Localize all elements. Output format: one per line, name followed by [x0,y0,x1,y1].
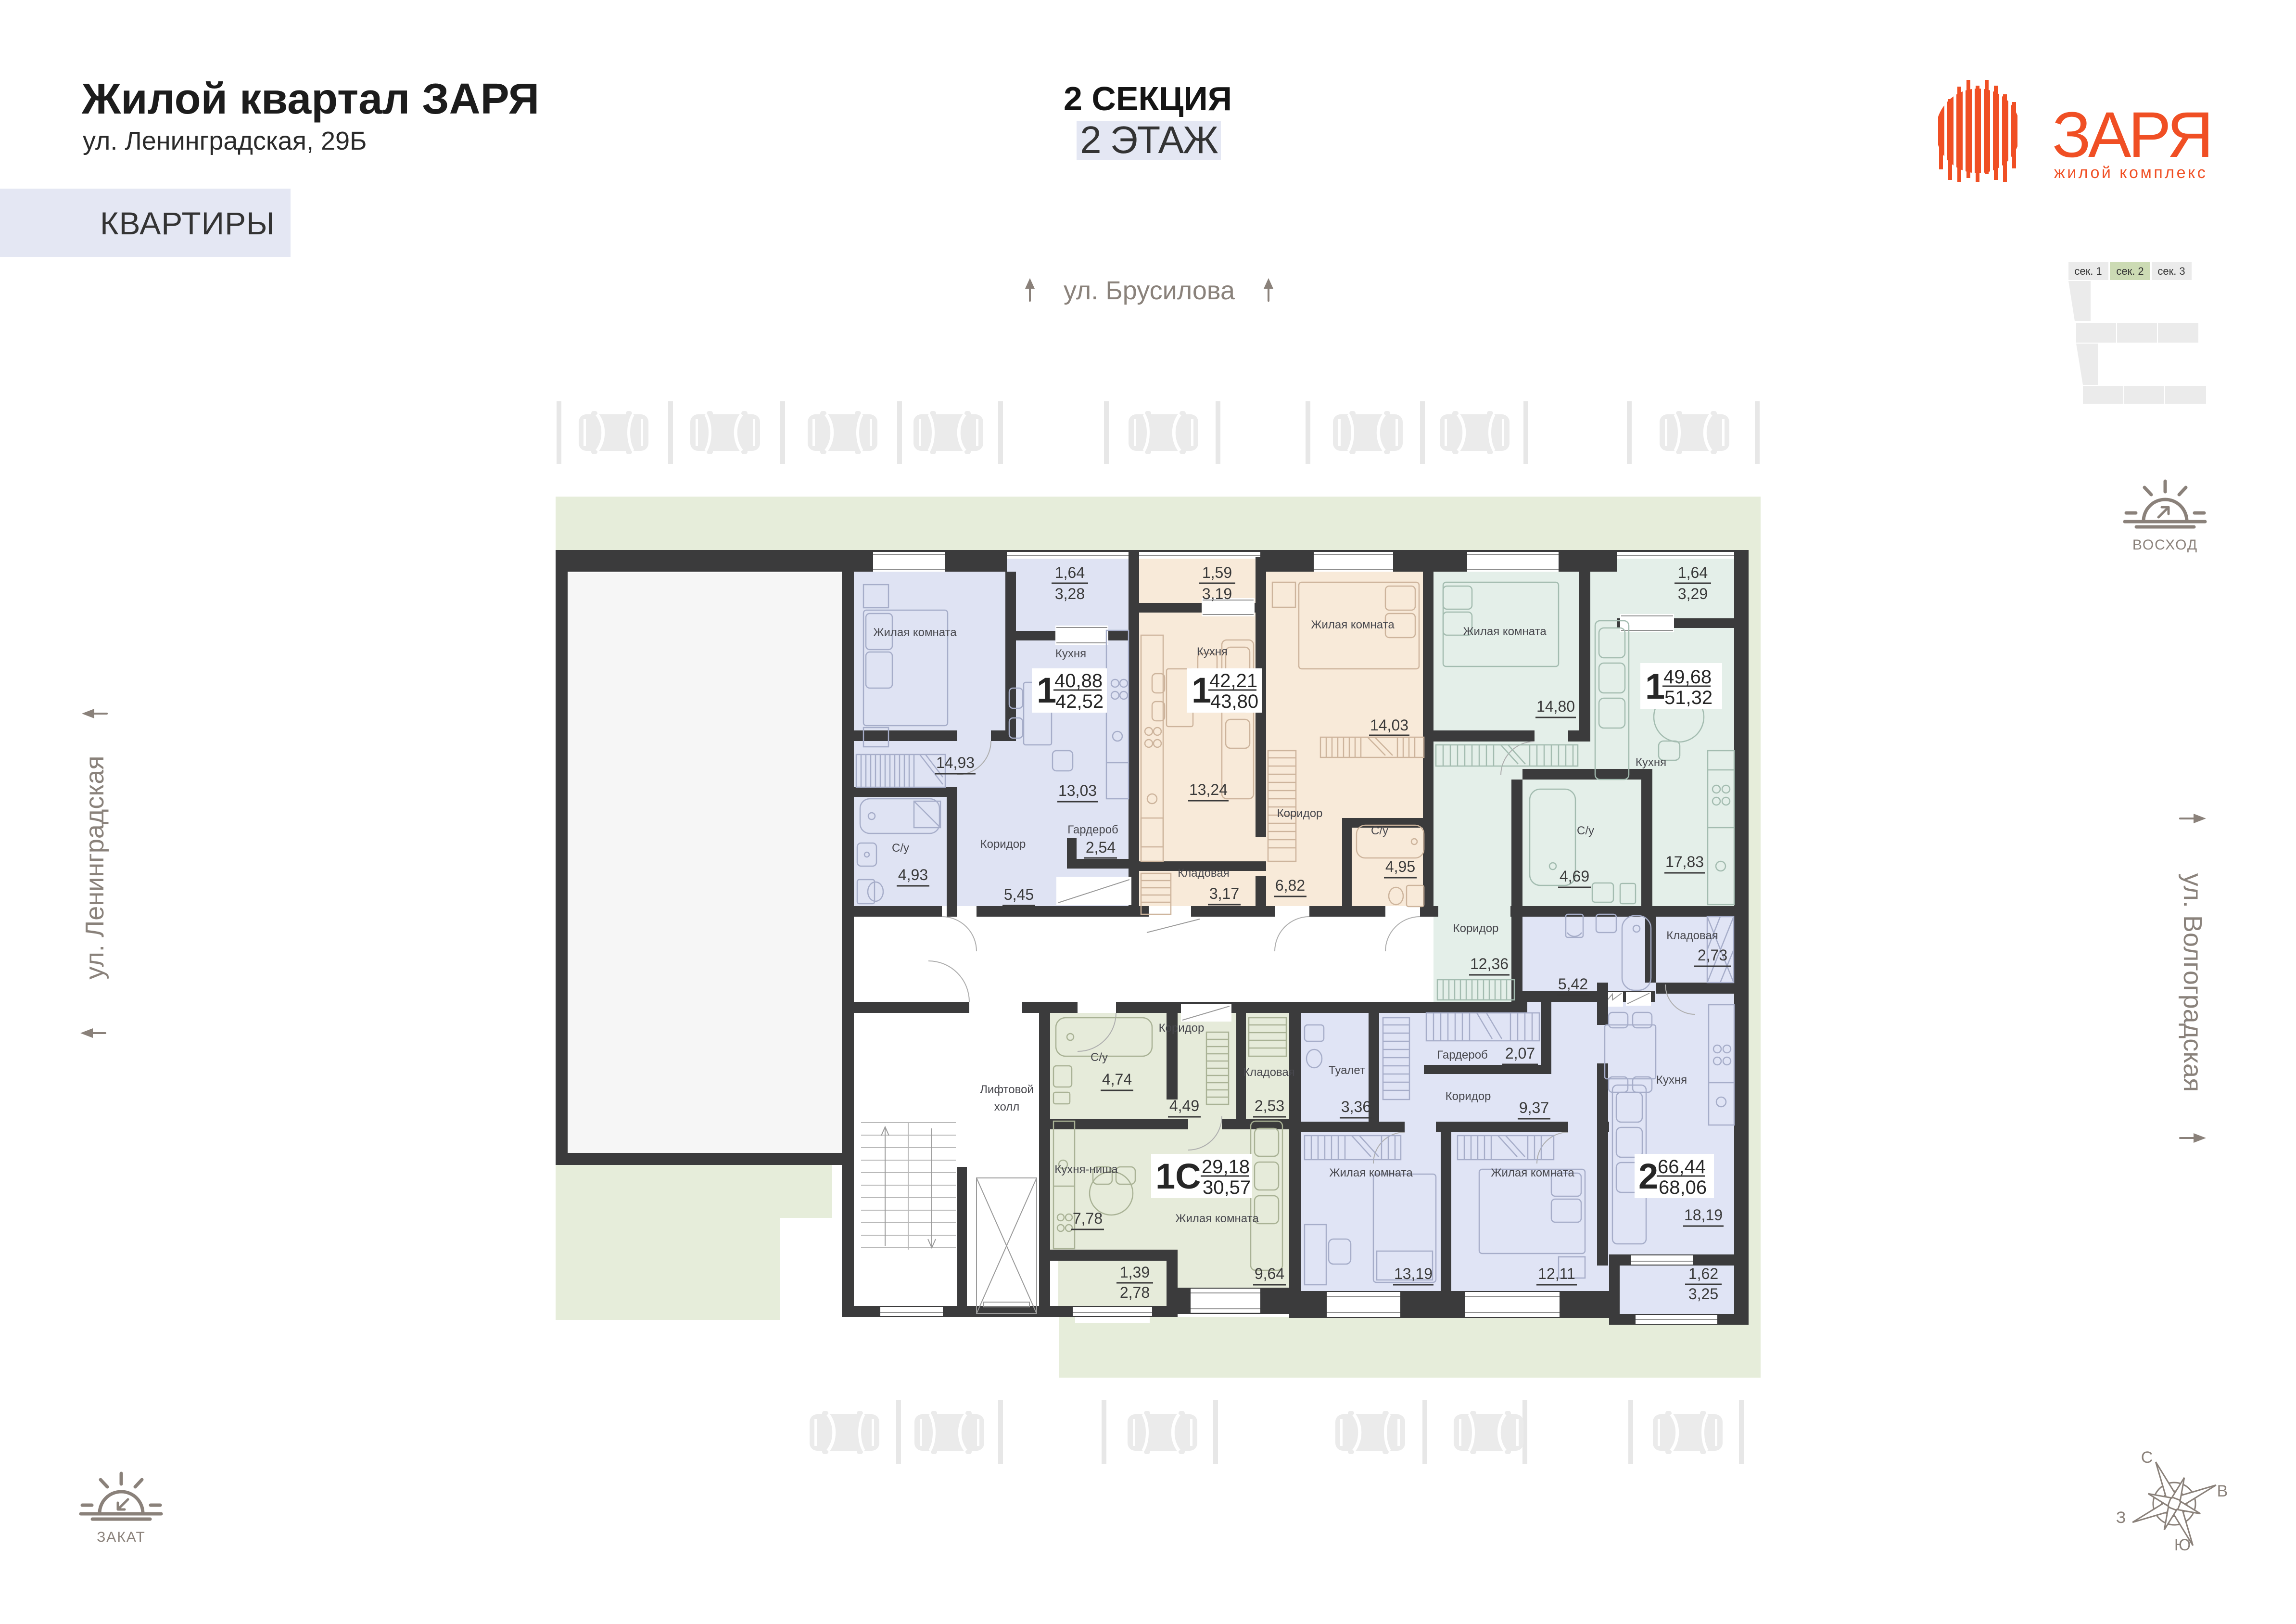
svg-text:7,78: 7,78 [1073,1210,1103,1227]
svg-text:ул. Брусилова: ул. Брусилова [1064,276,1235,305]
svg-text:12,36: 12,36 [1470,955,1509,972]
svg-text:5,45: 5,45 [1004,886,1034,903]
svg-text:3,17: 3,17 [1209,885,1239,902]
svg-text:С: С [2141,1448,2153,1467]
svg-text:ул. Волгоградская: ул. Волгоградская [2178,873,2207,1092]
svg-text:Гардероб: Гардероб [1437,1049,1488,1061]
svg-text:4,49: 4,49 [1169,1097,1199,1114]
svg-text:КВАРТИРЫ: КВАРТИРЫ [100,205,275,241]
svg-text:С/у: С/у [892,842,909,855]
svg-text:3,28: 3,28 [1055,585,1085,602]
svg-text:4,93: 4,93 [898,866,928,883]
svg-text:жилой комплекс: жилой комплекс [2054,164,2207,182]
svg-text:З: З [2116,1509,2126,1527]
svg-text:Кухня: Кухня [1055,647,1086,660]
svg-text:ЗАРЯ: ЗАРЯ [2052,99,2211,171]
svg-text:14,93: 14,93 [936,754,975,771]
svg-text:Кухня: Кухня [1636,756,1666,769]
svg-text:сек. 2: сек. 2 [2116,265,2144,277]
svg-text:Коридор: Коридор [1277,807,1323,820]
svg-text:18,19: 18,19 [1684,1206,1723,1224]
svg-text:Жилая комната: Жилая комната [1311,618,1395,631]
svg-text:42,52: 42,52 [1055,691,1104,712]
svg-text:42,21: 42,21 [1209,670,1257,691]
svg-text:С/у: С/у [1091,1051,1108,1064]
svg-text:ЗАКАТ: ЗАКАТ [97,1529,146,1545]
svg-text:66,44: 66,44 [1658,1156,1706,1177]
svg-text:Гардероб: Гардероб [1067,823,1118,836]
svg-text:6,82: 6,82 [1275,877,1305,894]
svg-text:1,39: 1,39 [1120,1264,1150,1281]
svg-text:1,64: 1,64 [1678,564,1708,581]
svg-text:1,59: 1,59 [1202,564,1232,581]
svg-text:2,78: 2,78 [1120,1284,1150,1301]
svg-text:Жилая комната: Жилая комната [1175,1212,1259,1225]
svg-text:Коридор: Коридор [980,838,1026,851]
svg-text:1: 1 [1037,670,1056,710]
svg-text:Жилая комната: Жилая комната [1491,1166,1574,1179]
svg-text:Туалет: Туалет [1329,1064,1365,1077]
svg-text:ул. Ленинградская, 29Б: ул. Ленинградская, 29Б [83,127,367,155]
svg-text:29,18: 29,18 [1202,1156,1250,1177]
svg-text:9,64: 9,64 [1255,1265,1284,1282]
svg-text:17,83: 17,83 [1665,853,1704,870]
svg-text:С/у: С/у [1371,824,1388,837]
svg-text:ул. Ленинградская: ул. Ленинградская [80,756,109,980]
svg-text:5,42: 5,42 [1558,975,1588,993]
svg-text:Ю: Ю [2174,1536,2191,1554]
svg-text:1,62: 1,62 [1688,1265,1718,1282]
svg-text:В: В [2217,1482,2228,1500]
svg-text:3,29: 3,29 [1678,585,1708,602]
svg-text:13,19: 13,19 [1394,1265,1433,1282]
svg-text:2,53: 2,53 [1255,1097,1284,1114]
svg-text:Кладовая: Кладовая [1243,1066,1295,1079]
svg-text:Кладовая: Кладовая [1666,929,1718,942]
svg-text:Кухня-ниша: Кухня-ниша [1054,1163,1118,1176]
svg-text:9,37: 9,37 [1519,1099,1549,1116]
svg-text:4,69: 4,69 [1560,868,1589,885]
svg-text:сек. 1: сек. 1 [2074,265,2102,277]
svg-text:30,57: 30,57 [1203,1177,1251,1198]
svg-text:2: 2 [1638,1156,1658,1196]
svg-text:49,68: 49,68 [1663,666,1712,688]
svg-text:Жилой квартал ЗАРЯ: Жилой квартал ЗАРЯ [81,75,539,123]
svg-text:Жилая комната: Жилая комната [873,626,957,639]
svg-text:2 СЕКЦИЯ: 2 СЕКЦИЯ [1064,80,1232,117]
svg-text:14,03: 14,03 [1370,716,1408,734]
svg-text:13,24: 13,24 [1189,781,1228,798]
svg-text:4,74: 4,74 [1102,1071,1132,1088]
svg-text:14,80: 14,80 [1536,698,1575,715]
svg-text:3,25: 3,25 [1688,1285,1718,1303]
svg-text:Лифтовой: Лифтовой [980,1083,1034,1096]
svg-text:3,19: 3,19 [1202,585,1232,602]
svg-text:43,80: 43,80 [1210,691,1258,712]
svg-text:Коридор: Коридор [1159,1022,1205,1035]
svg-text:Коридор: Коридор [1453,922,1499,935]
svg-text:2 ЭТАЖ: 2 ЭТАЖ [1080,118,1218,161]
svg-text:68,06: 68,06 [1659,1177,1707,1198]
svg-text:Жилая комната: Жилая комната [1329,1166,1413,1179]
svg-text:2,07: 2,07 [1505,1045,1535,1062]
svg-text:1: 1 [1645,666,1665,706]
svg-text:Жилая комната: Жилая комната [1463,625,1547,638]
svg-text:40,88: 40,88 [1054,670,1103,691]
svg-text:Кухня: Кухня [1656,1074,1687,1087]
svg-text:1: 1 [1192,670,1211,710]
svg-text:1,64: 1,64 [1055,564,1085,581]
svg-text:2,73: 2,73 [1698,946,1727,964]
svg-text:Кладовая: Кладовая [1178,867,1230,880]
svg-text:12,11: 12,11 [1538,1265,1575,1282]
svg-text:3,36: 3,36 [1341,1098,1371,1115]
svg-text:холл: холл [994,1100,1020,1113]
svg-text:Кухня: Кухня [1197,645,1228,658]
svg-text:С/у: С/у [1577,824,1594,837]
svg-text:4,95: 4,95 [1385,858,1415,875]
svg-text:ВОСХОД: ВОСХОД [2132,537,2198,553]
svg-text:51,32: 51,32 [1664,687,1712,708]
svg-text:2,54: 2,54 [1086,839,1116,856]
svg-text:13,03: 13,03 [1058,782,1097,799]
svg-text:Коридор: Коридор [1446,1090,1491,1103]
svg-text:сек. 3: сек. 3 [2157,265,2185,277]
svg-text:1С: 1С [1155,1156,1201,1196]
